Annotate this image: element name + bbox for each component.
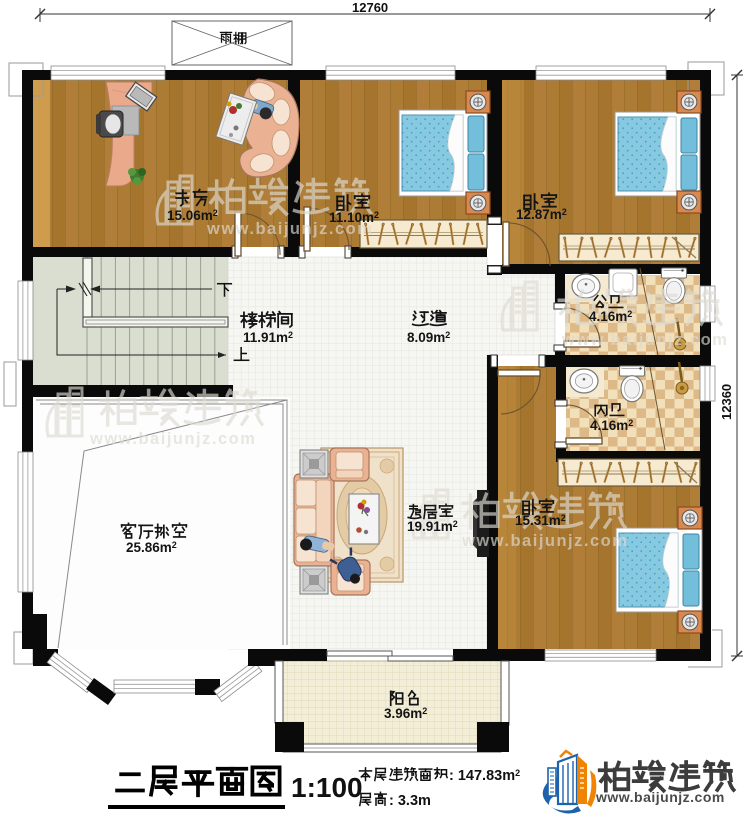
svg-text:: 147.83m2: : 147.83m2 bbox=[449, 768, 520, 784]
svg-text:3.96m2: 3.96m2 bbox=[384, 706, 427, 721]
svg-text:15.31m2: 15.31m2 bbox=[515, 513, 566, 528]
svg-text:www.baijunjz.com: www.baijunjz.com bbox=[461, 532, 628, 550]
svg-text:19.91m2: 19.91m2 bbox=[407, 519, 458, 534]
svg-text:4.16m2: 4.16m2 bbox=[590, 418, 633, 433]
svg-text:12.87m2: 12.87m2 bbox=[516, 207, 567, 222]
svg-text:www.baijunjz.com: www.baijunjz.com bbox=[561, 331, 728, 349]
svg-text:15.06m2: 15.06m2 bbox=[167, 208, 218, 223]
svg-text:11.91m2: 11.91m2 bbox=[243, 330, 293, 345]
svg-text:25.86m2: 25.86m2 bbox=[126, 540, 177, 555]
svg-text:12360: 12360 bbox=[719, 384, 734, 420]
svg-text:12760: 12760 bbox=[352, 0, 388, 15]
svg-text:11.10m2: 11.10m2 bbox=[329, 210, 379, 225]
svg-text:www.baijunjz.com: www.baijunjz.com bbox=[89, 430, 256, 448]
svg-text:8.09m2: 8.09m2 bbox=[407, 330, 450, 345]
svg-text:4.16m2: 4.16m2 bbox=[589, 309, 632, 324]
svg-text:www.baijunjz.com: www.baijunjz.com bbox=[595, 789, 725, 805]
svg-text:: 3.3m: : 3.3m bbox=[389, 793, 431, 809]
svg-text:1:100: 1:100 bbox=[291, 772, 363, 803]
